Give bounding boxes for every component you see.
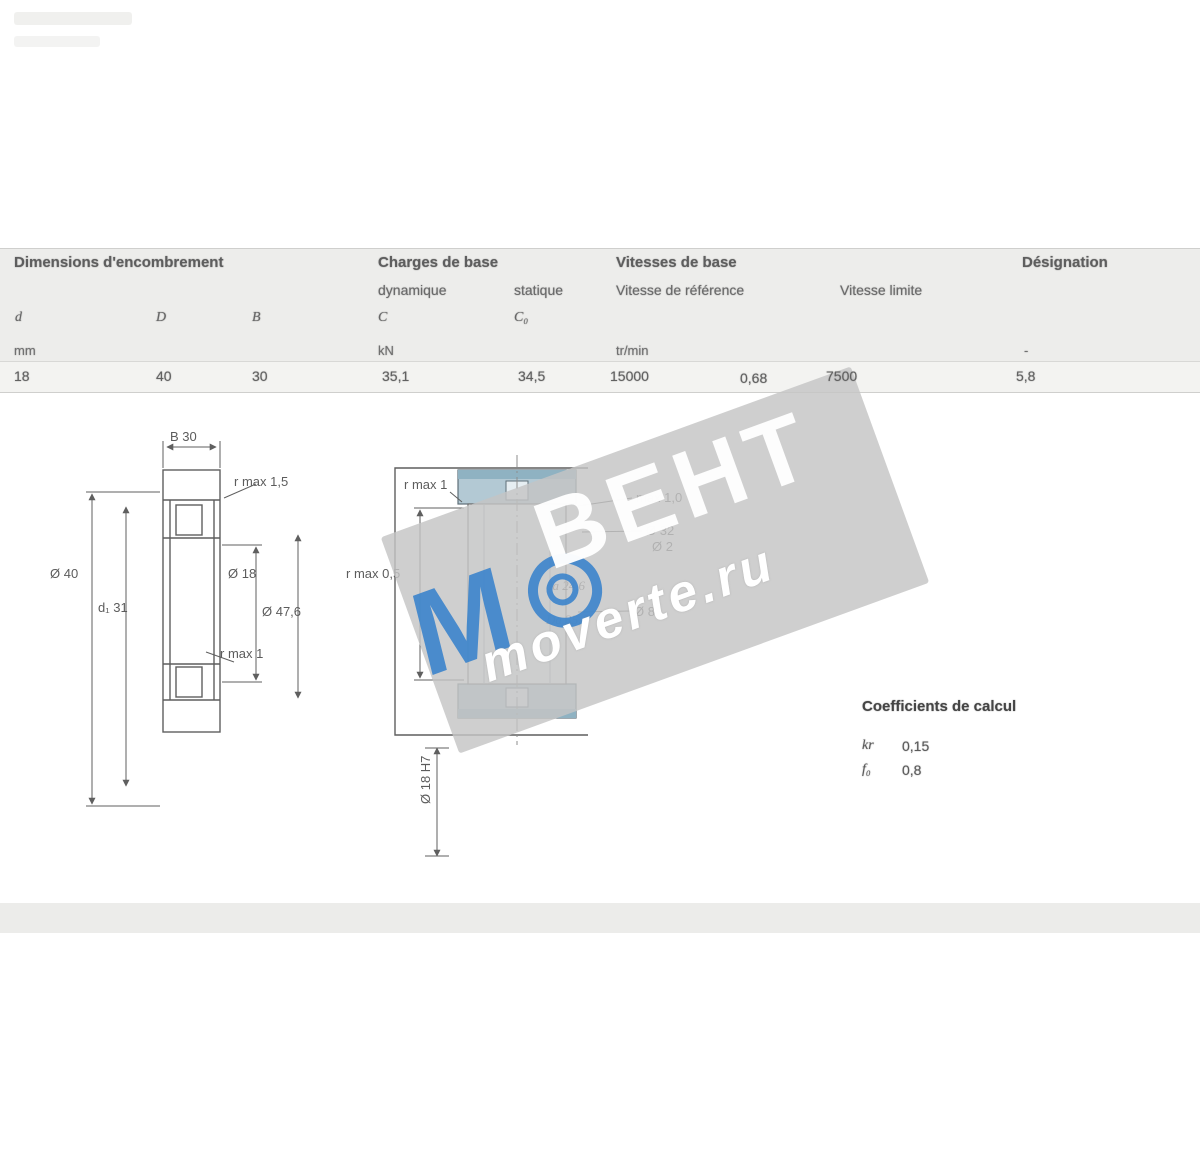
cell-reference-speed: 15000 — [610, 368, 649, 384]
cell-mass-fragment: 0,68 — [740, 370, 767, 386]
left-bearing-section — [86, 441, 298, 806]
dim-label-d1: d₁ 31 — [98, 600, 128, 615]
dim-label-rmax-housing: r max 1 — [404, 477, 447, 492]
subheader-reference-speed: Vitesse de référence — [616, 282, 744, 298]
col-group-dimensions: Dimensions d'encombrement — [14, 254, 223, 271]
dim-label-B: B 30 — [170, 429, 197, 444]
subheader-limiting-speed: Vitesse limite — [840, 282, 922, 298]
cell-outer-diameter: 40 — [156, 368, 172, 384]
dim-label-outer-dia: Ø 40 — [50, 566, 78, 581]
dim-label-rmax-top: r max 1,5 — [234, 474, 288, 489]
factor-kr-symbol: kr — [862, 738, 874, 754]
datasheet-page: Dimensions d'encombrement Charges de bas… — [0, 0, 1200, 1165]
col-group-speeds: Vitesses de base — [616, 254, 737, 271]
factor-f0-symbol: f₀ — [862, 762, 871, 778]
symbol-C: C — [378, 310, 387, 326]
symbol-B: B — [252, 310, 261, 326]
cell-bore-diameter: 18 — [14, 368, 30, 384]
unit-rpm: tr/min — [616, 343, 649, 358]
unit-kN: kN — [378, 343, 394, 358]
unit-mm: mm — [14, 343, 36, 358]
symbol-D: D — [156, 310, 166, 326]
dim-label-bore: Ø 18 — [228, 566, 256, 581]
cell-static-load: 34,5 — [518, 368, 545, 384]
cell-limiting-speed: 7500 — [826, 368, 857, 384]
subheader-static: statique — [514, 282, 563, 298]
cell-dynamic-load: 35,1 — [382, 368, 409, 384]
col-group-load-ratings: Charges de base — [378, 254, 498, 271]
factors-title: Coefficients de calcul — [862, 698, 1016, 715]
symbol-d: d — [15, 310, 22, 326]
unit-dash: - — [1024, 343, 1028, 358]
symbol-C0: C₀ — [514, 310, 528, 326]
subheader-dynamic: dynamique — [378, 282, 447, 298]
dim-label-shaft-fit: Ø 18 H7 — [418, 756, 433, 804]
cell-width: 30 — [252, 368, 268, 384]
factor-f0-value: 0,8 — [902, 762, 921, 778]
col-group-designation: Désignation — [1022, 254, 1108, 271]
dim-label-rmax-bottom: r max 1 — [220, 646, 263, 661]
cell-designation: 5,8 — [1016, 368, 1035, 384]
dim-label-flange-dia: Ø 47,6 — [262, 604, 301, 619]
factor-kr-value: 0,15 — [902, 738, 929, 754]
